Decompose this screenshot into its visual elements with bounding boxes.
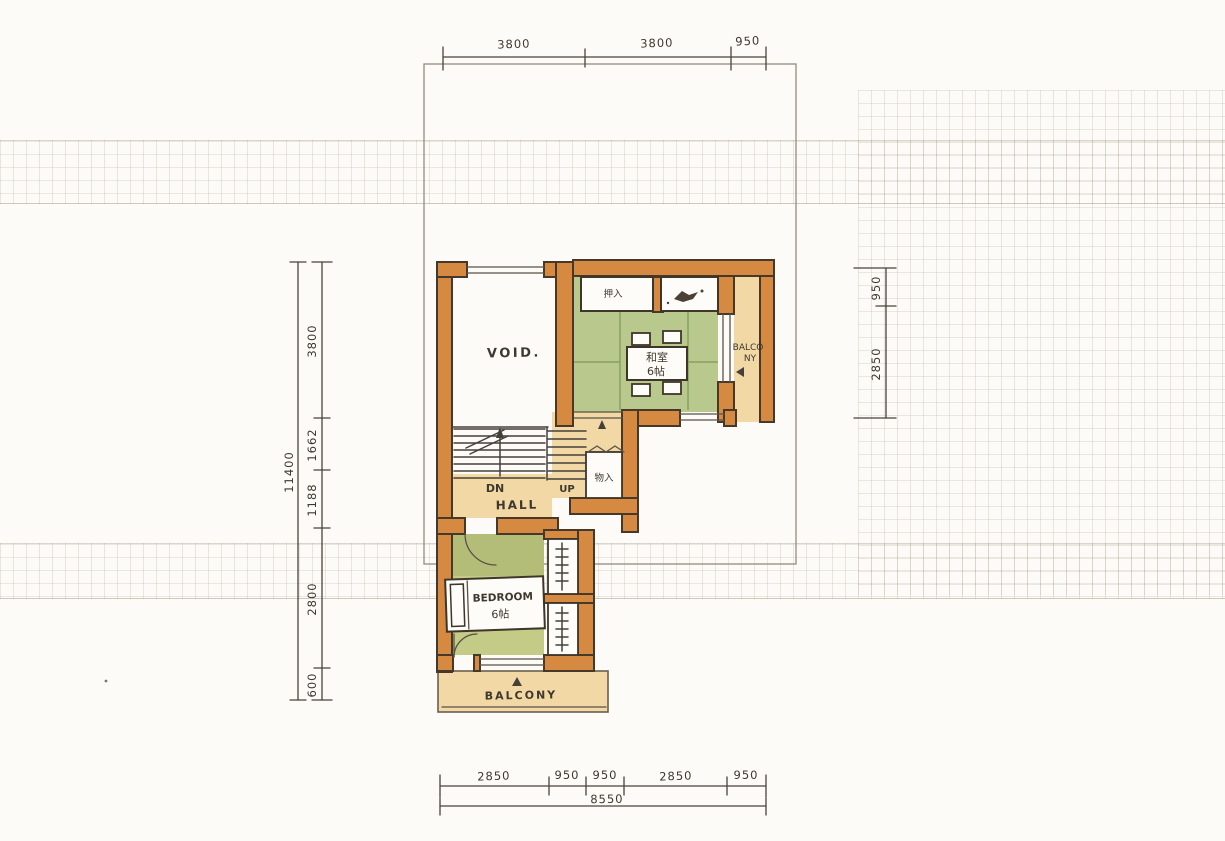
ornament-dot: [701, 290, 704, 293]
room-label-bedroom-size: 6帖: [491, 607, 509, 621]
wall-tatami-balcony-top: [718, 276, 734, 314]
dim-bottom-2: 950: [555, 768, 580, 782]
ornament-dot: [667, 302, 669, 304]
room-label-storage: 物入: [594, 472, 614, 484]
label-stairs-down: DN: [486, 482, 504, 495]
floor-cushion: [663, 382, 681, 394]
dim-bottom-total: 8550: [590, 792, 624, 807]
room-label-bedroom: BEDROOM: [472, 591, 533, 605]
dim-right-1: 950: [869, 276, 883, 301]
room-label-oshiire: 押入: [603, 288, 623, 300]
stair-break-mark: [470, 436, 508, 454]
pillow: [450, 584, 464, 626]
wall-south-west-corner: [437, 655, 453, 671]
dim-bottom-5: 950: [734, 768, 759, 782]
floor-cushion: [632, 384, 650, 396]
dim-top-1: 3800: [497, 36, 531, 51]
room-label-balcony-right-2: NY: [744, 354, 757, 364]
wall-void-north-west: [437, 262, 467, 277]
dim-top-2: 3800: [640, 35, 674, 50]
wall-under-storage: [570, 498, 638, 514]
floor-plan-canvas: VOID. 和室 6帖 押入 BALCO NY 物入 DN UP HALL BE…: [0, 0, 1225, 841]
dim-bottom-3: 950: [593, 768, 618, 782]
wall-closet-divider: [544, 594, 594, 603]
wall-tatami-west: [556, 262, 573, 426]
room-label-void: VOID.: [487, 346, 541, 362]
label-stairs-up: UP: [559, 484, 574, 495]
wall-south-east: [544, 655, 594, 671]
wall-hall-bedroom-west: [437, 518, 465, 534]
floor-cushion: [632, 333, 650, 345]
dim-left-4: 2800: [305, 582, 319, 615]
wall-tatami-south-corner: [724, 410, 736, 426]
wall-south-pier: [474, 655, 480, 671]
stray-pencil-dot: [105, 680, 108, 683]
dim-left-5: 600: [305, 673, 319, 698]
room-label-tatami-size: 6帖: [647, 365, 665, 378]
dim-top-3: 950: [735, 33, 761, 48]
room-label-hall: HALL: [495, 498, 538, 513]
floor-plan-drawing: VOID. 和室 6帖 押入 BALCO NY 物入 DN UP HALL BE…: [0, 0, 1225, 841]
room-label-tatami: 和室: [646, 350, 668, 364]
closet-upper: [548, 539, 578, 594]
dim-bottom-4: 2850: [659, 768, 693, 783]
room-label-balcony-bottom: BALCONY: [485, 688, 558, 702]
dim-left-2: 1662: [305, 428, 319, 461]
tokonoma-alcove: [661, 277, 718, 311]
floor-cushion: [663, 331, 681, 343]
wall-north: [573, 260, 774, 276]
room-label-balcony-right-1: BALCO: [733, 343, 764, 353]
dim-left-total: 11400: [282, 451, 296, 493]
dim-left-1: 3800: [305, 324, 319, 357]
bed: [445, 576, 545, 631]
dim-right-2: 2850: [869, 347, 883, 380]
dim-bottom-1: 2850: [477, 768, 511, 783]
dim-left-3: 1188: [305, 483, 319, 516]
